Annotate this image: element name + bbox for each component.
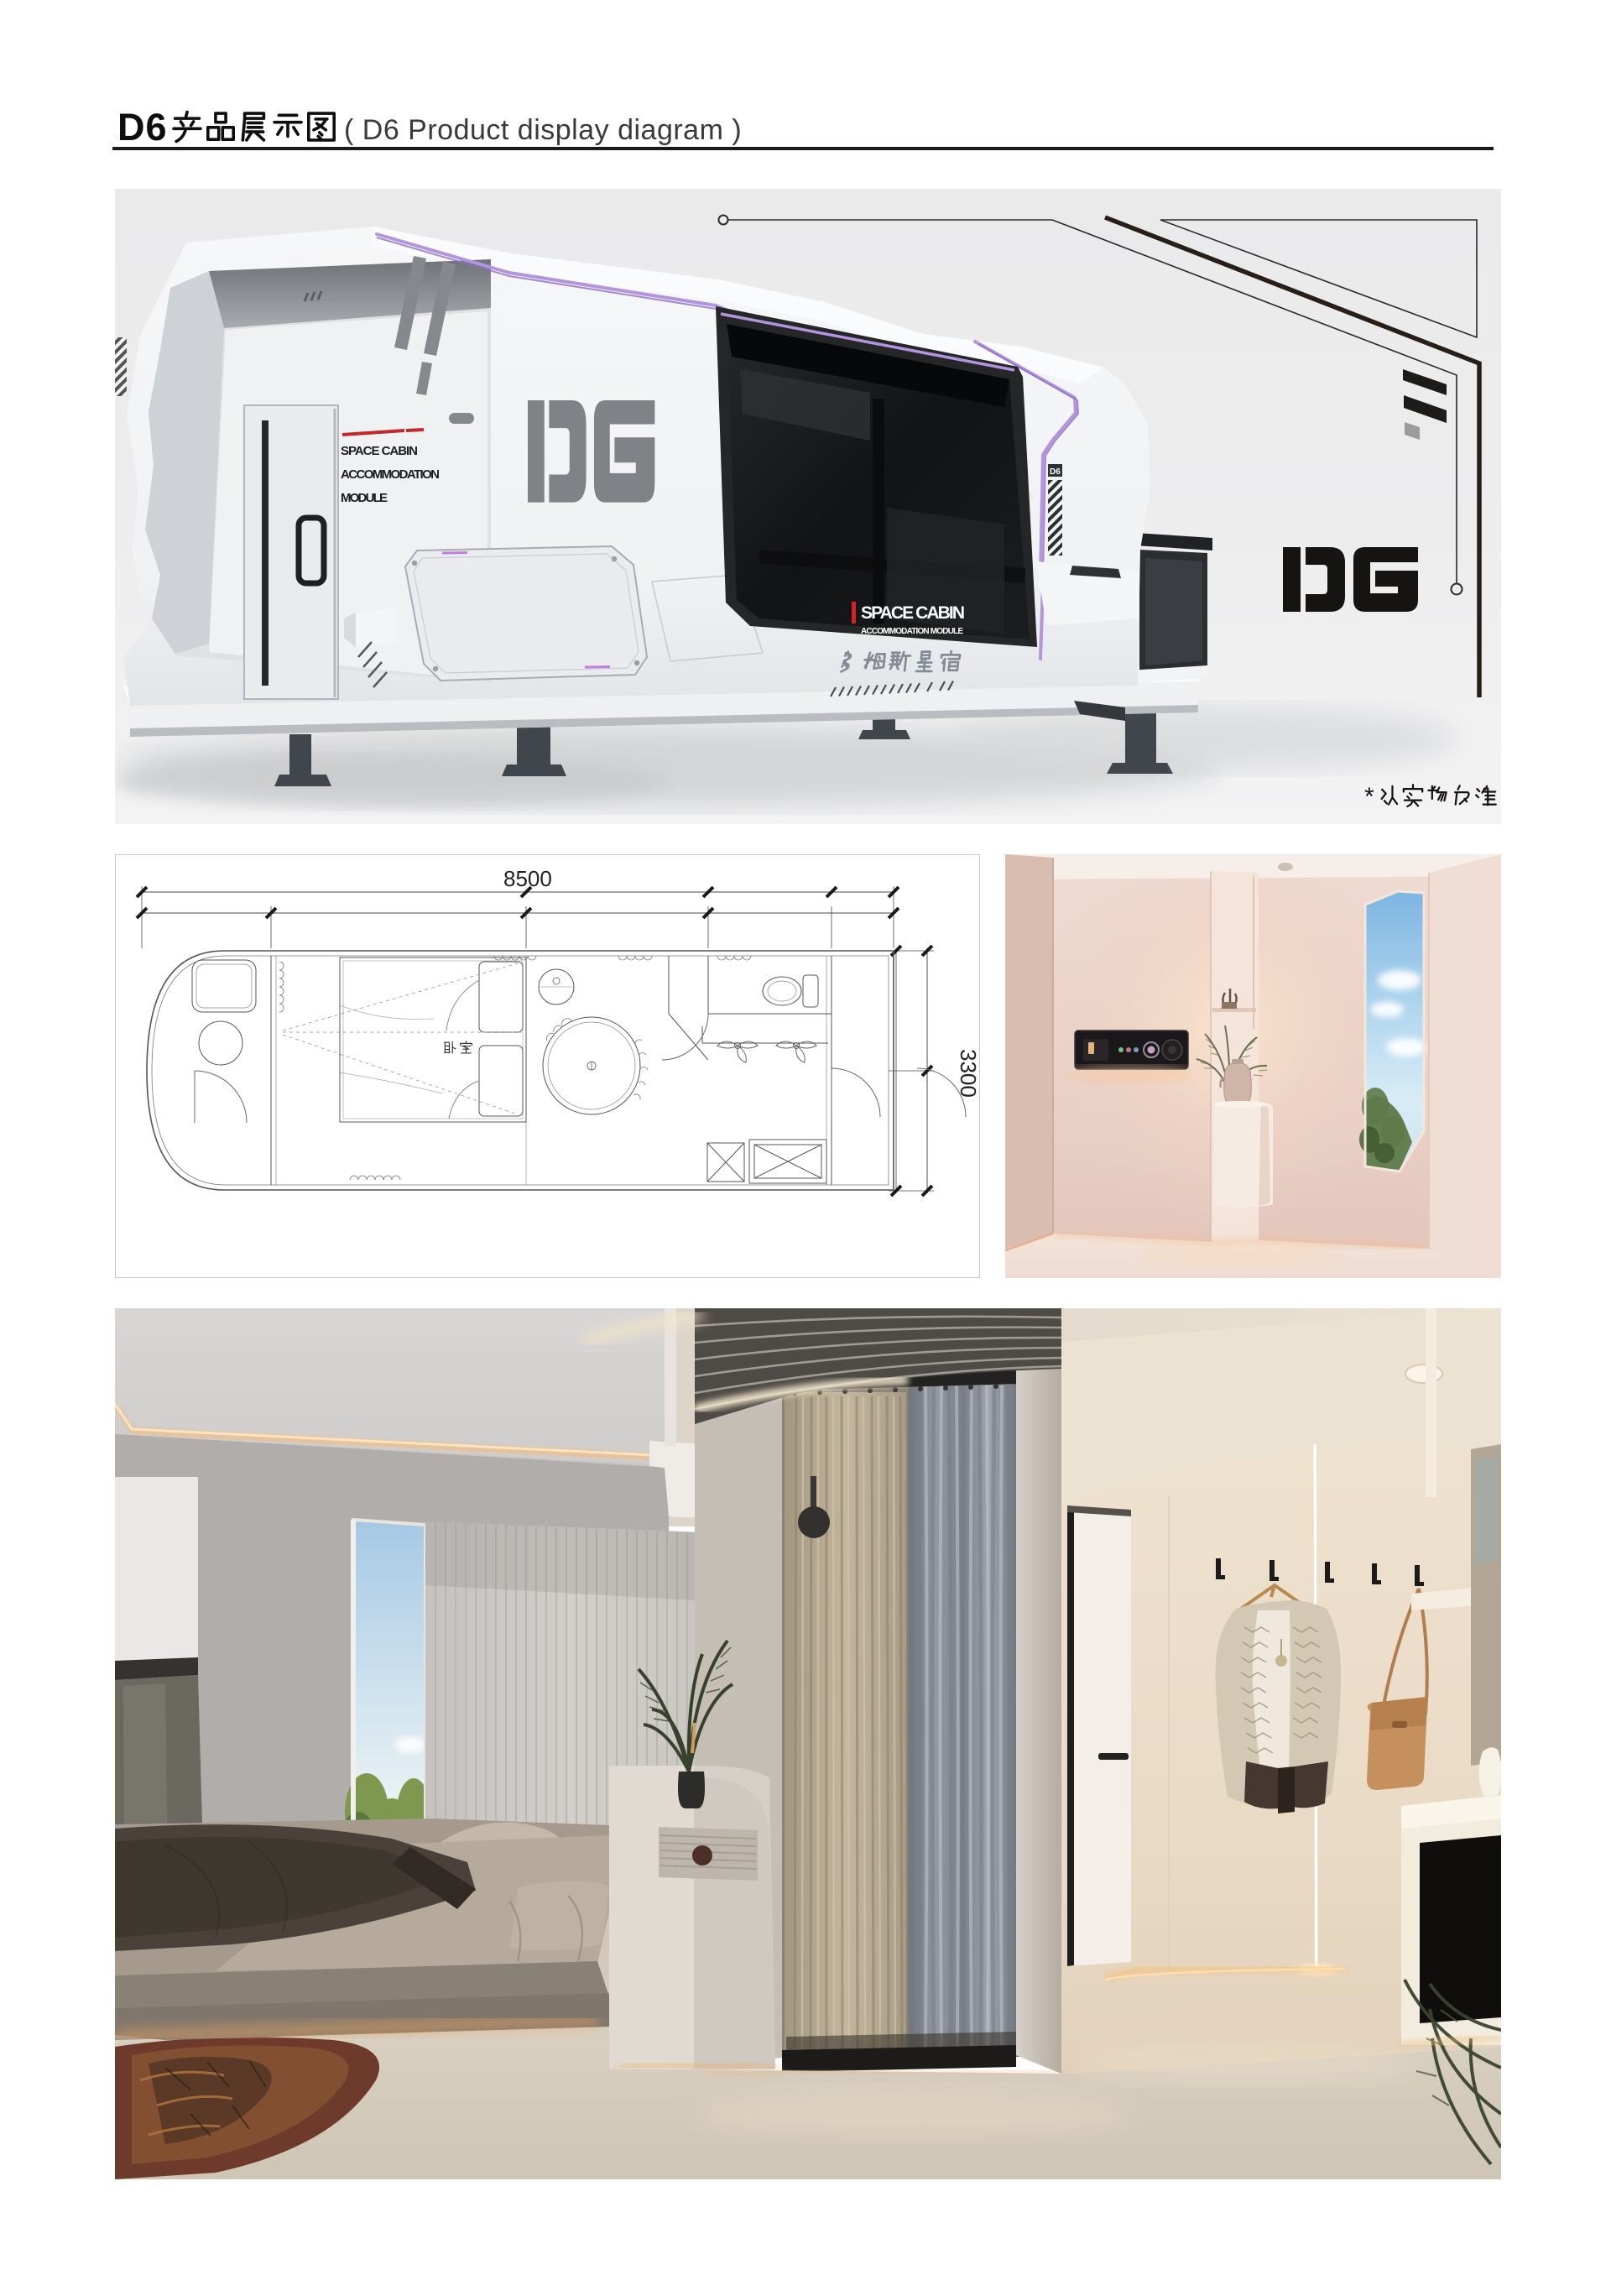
svg-text:ACCOMMODATION MODULE: ACCOMMODATION MODULE: [861, 627, 963, 636]
svg-text:D6: D6: [1050, 467, 1061, 477]
svg-text:MODULE: MODULE: [341, 491, 388, 505]
svg-text:( D6 Product display diagram ): ( D6 Product display diagram ): [344, 114, 742, 146]
svg-text:D6: D6: [117, 107, 168, 149]
svg-text:8500: 8500: [503, 866, 552, 891]
svg-text:ACCOMMODATION: ACCOMMODATION: [341, 467, 440, 482]
svg-text:SPACE CABIN: SPACE CABIN: [861, 603, 965, 623]
svg-text:SPACE CABIN: SPACE CABIN: [341, 444, 418, 458]
svg-text:*: *: [1364, 783, 1374, 811]
svg-text:3300: 3300: [956, 1049, 980, 1098]
